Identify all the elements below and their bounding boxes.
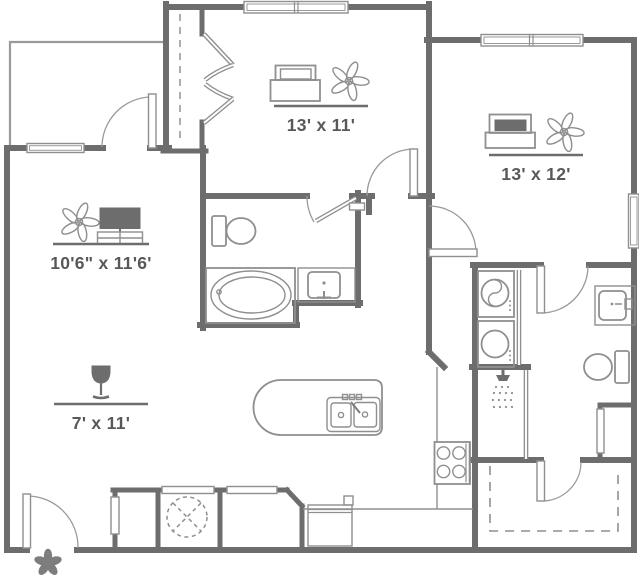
living-room-dimensions: 10'6" x 11'6' bbox=[50, 253, 152, 273]
bedroom-1-door bbox=[367, 149, 418, 196]
floor-plan: 13' x 11' 13' x 12' 10'6" x 11'6' 7 bbox=[0, 0, 639, 582]
bathtub bbox=[206, 268, 295, 323]
utility-closet-door bbox=[111, 497, 119, 534]
kitchen bbox=[167, 367, 473, 546]
label-living-room: 10'6" x 11'6' bbox=[50, 202, 152, 273]
label-dining-area: 7' x 11' bbox=[54, 366, 148, 434]
washer-icon bbox=[478, 271, 514, 317]
patio-door bbox=[102, 94, 156, 148]
window-living-room bbox=[27, 144, 84, 153]
toilet-2 bbox=[584, 351, 629, 383]
double-sink-icon bbox=[327, 395, 380, 432]
entry-flower-marker bbox=[33, 549, 63, 577]
door-jamb bbox=[350, 203, 365, 210]
vanity-sink bbox=[298, 268, 355, 302]
shower-spray-dots bbox=[492, 386, 513, 408]
window-bedroom-2 bbox=[481, 35, 583, 47]
counters bbox=[303, 367, 473, 509]
laundry-closet bbox=[478, 270, 519, 367]
toilet bbox=[212, 216, 256, 246]
ceiling-fan-icon bbox=[58, 202, 102, 245]
ceiling-fan-icon bbox=[543, 112, 587, 155]
bathroom-1 bbox=[206, 216, 355, 323]
bifold-closet-doors bbox=[180, 14, 233, 143]
linen-closet-door bbox=[597, 409, 604, 453]
entry-door bbox=[23, 494, 78, 548]
label-bedroom-2: 13' x 12' bbox=[486, 112, 587, 184]
shower bbox=[492, 369, 526, 459]
water-heater-icon bbox=[167, 497, 207, 537]
patio-outline bbox=[10, 42, 165, 148]
interior-walls bbox=[113, 7, 634, 550]
dishwasher-icon bbox=[308, 496, 353, 546]
bed-icon bbox=[486, 115, 536, 149]
patio-room-door bbox=[537, 461, 581, 501]
tv-console-icon bbox=[98, 208, 143, 245]
dashed-patio-outline bbox=[490, 466, 618, 531]
bedroom-2-door bbox=[429, 206, 477, 257]
ceiling-fan-icon bbox=[328, 61, 372, 104]
window-bedroom-1 bbox=[244, 2, 348, 14]
vanity-sink-2 bbox=[595, 286, 635, 325]
bedroom-2-dimensions: 13' x 12' bbox=[501, 164, 570, 184]
wine-glass-icon bbox=[92, 366, 111, 399]
bathroom-2 bbox=[584, 286, 635, 383]
window-bedroom-2-side bbox=[629, 194, 639, 248]
floor-plan-drawing: 13' x 11' 13' x 12' 10'6" x 11'6' 7 bbox=[0, 0, 639, 582]
kitchen-island bbox=[254, 380, 383, 435]
dryer-icon bbox=[478, 321, 514, 367]
bed-icon bbox=[271, 66, 321, 102]
stove-icon bbox=[435, 442, 471, 484]
shower-head-icon bbox=[496, 375, 510, 381]
dining-area-dimensions: 7' x 11' bbox=[72, 413, 130, 433]
bedroom-1-dimensions: 13' x 11' bbox=[287, 115, 355, 135]
label-bedroom-1: 13' x 11' bbox=[271, 61, 372, 135]
bathroom-2-door bbox=[537, 266, 588, 313]
